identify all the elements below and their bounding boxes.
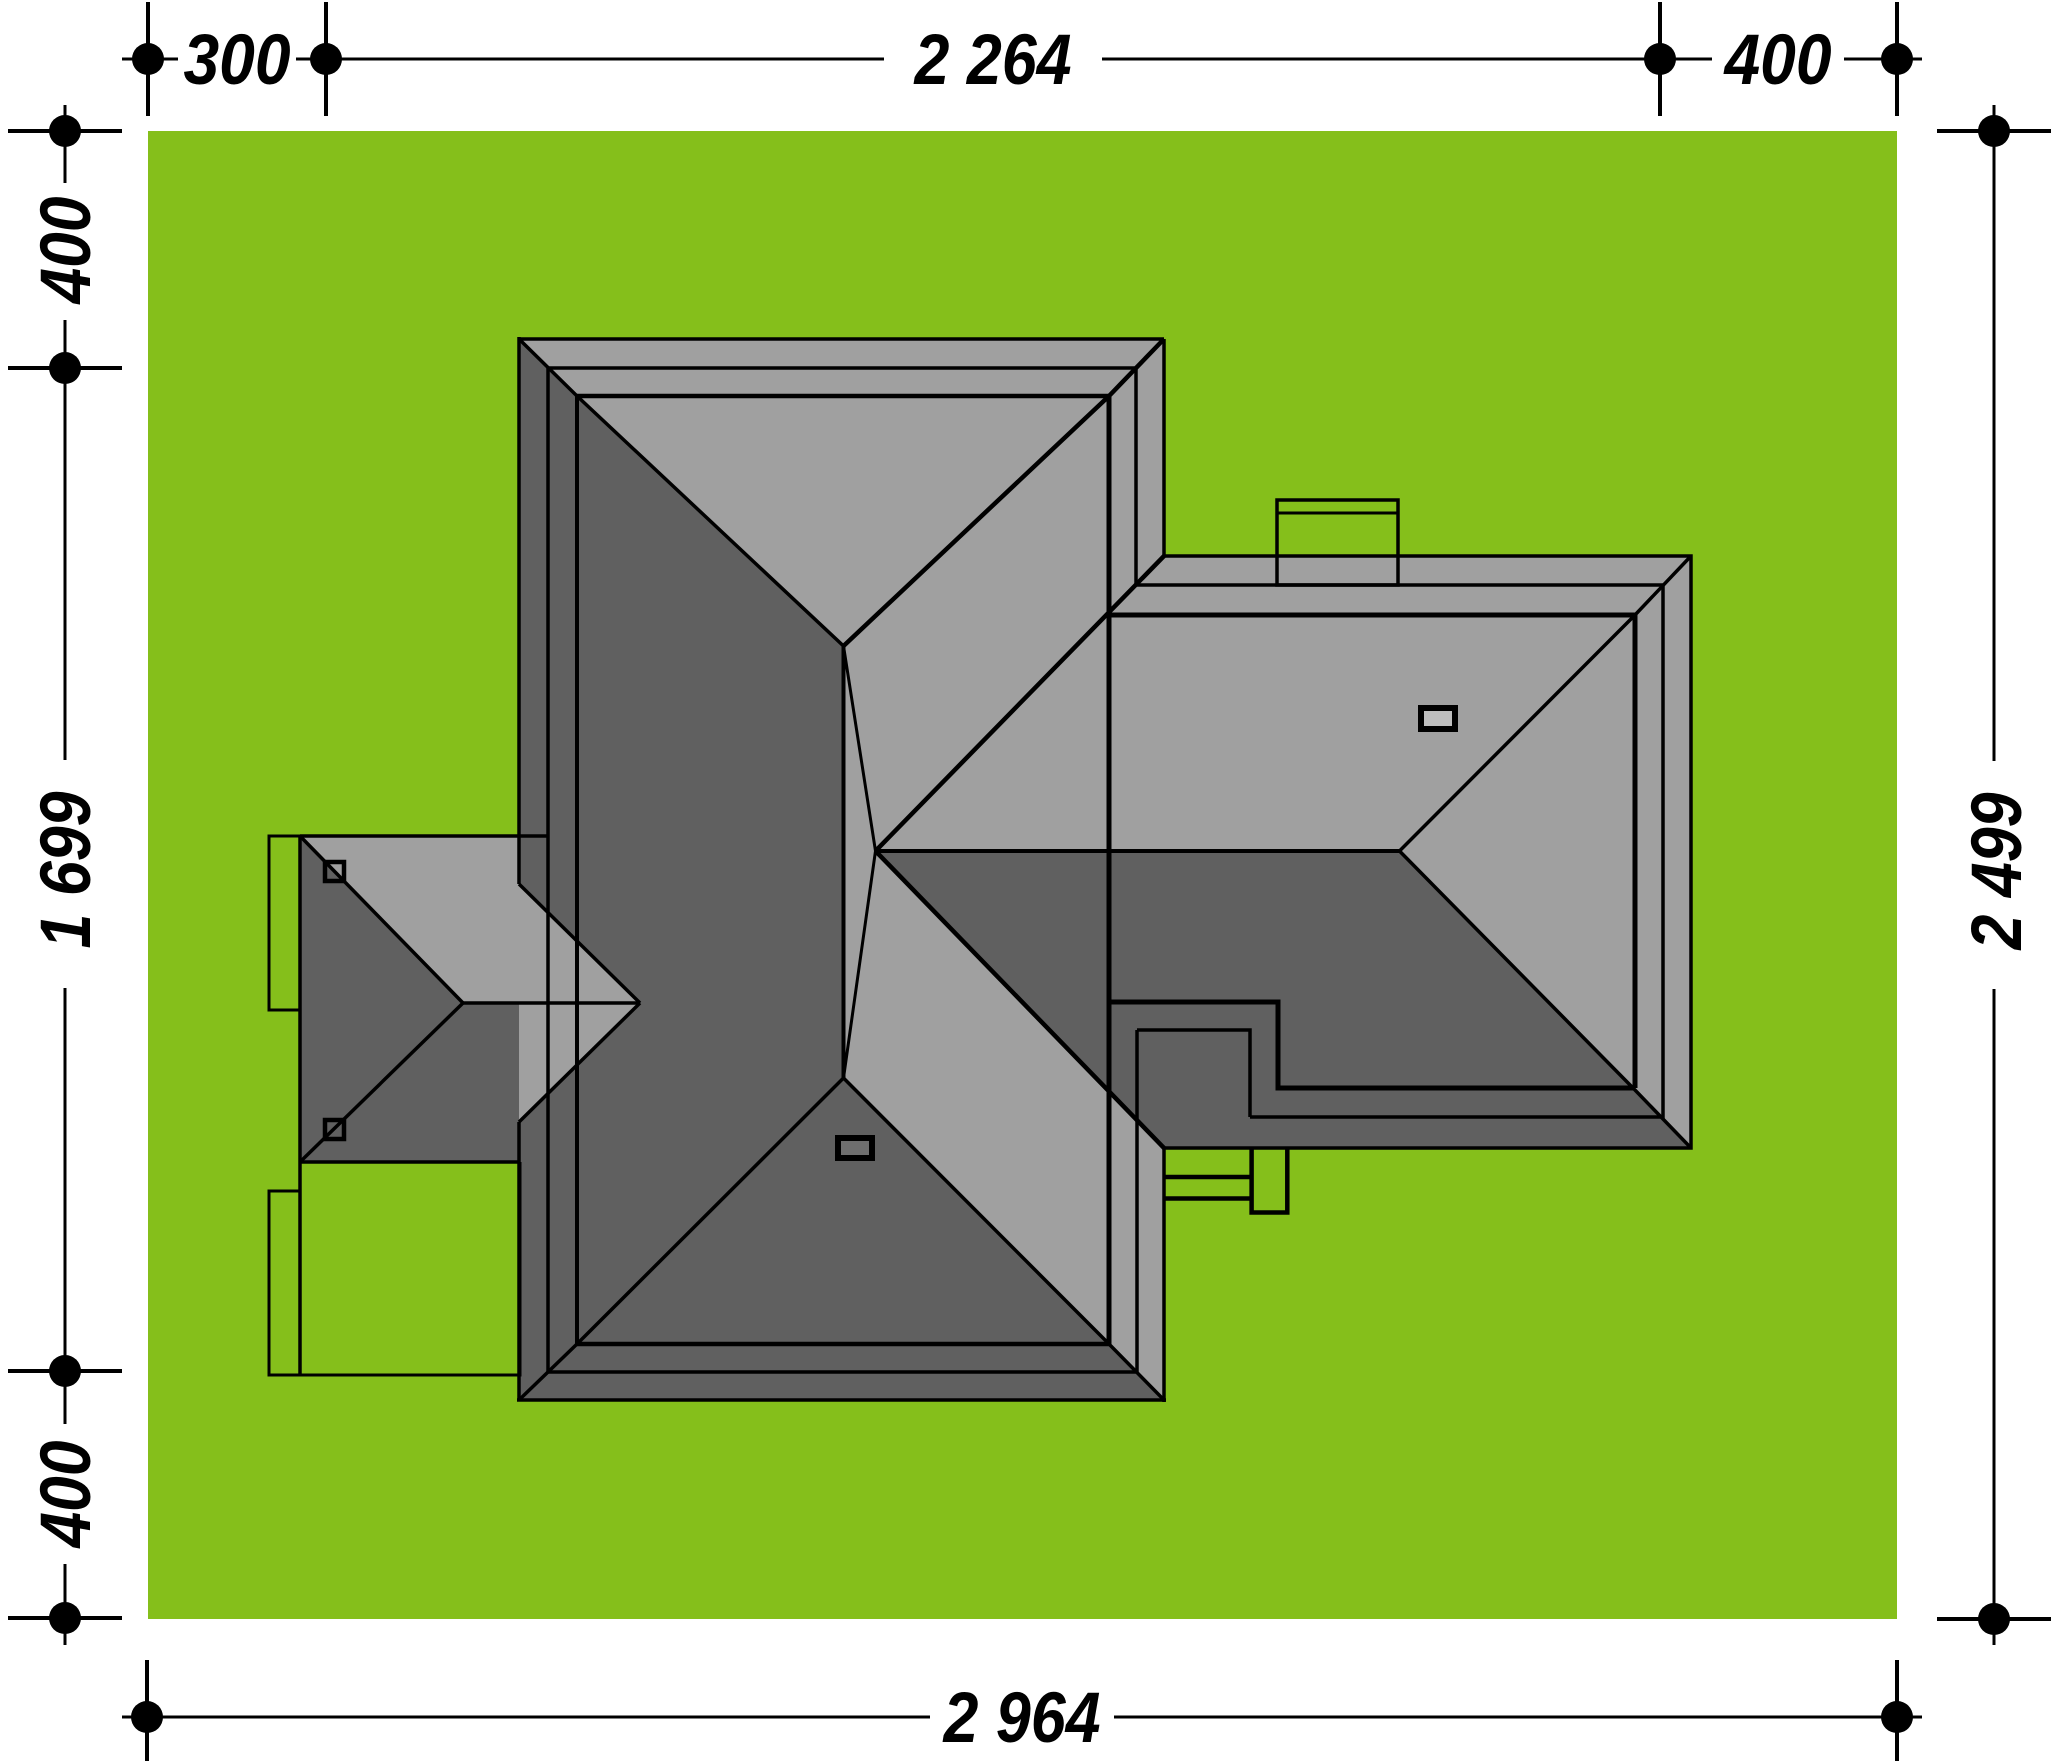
svg-text:400: 400 (1723, 21, 1832, 100)
svg-text:1 699: 1 699 (27, 791, 106, 948)
svg-text:400: 400 (27, 1441, 106, 1550)
svg-text:2 264: 2 264 (913, 21, 1072, 100)
svg-text:2 964: 2 964 (942, 1679, 1101, 1758)
svg-text:300: 300 (184, 21, 291, 100)
svg-text:400: 400 (27, 197, 106, 306)
svg-text:2 499: 2 499 (1958, 792, 2037, 951)
